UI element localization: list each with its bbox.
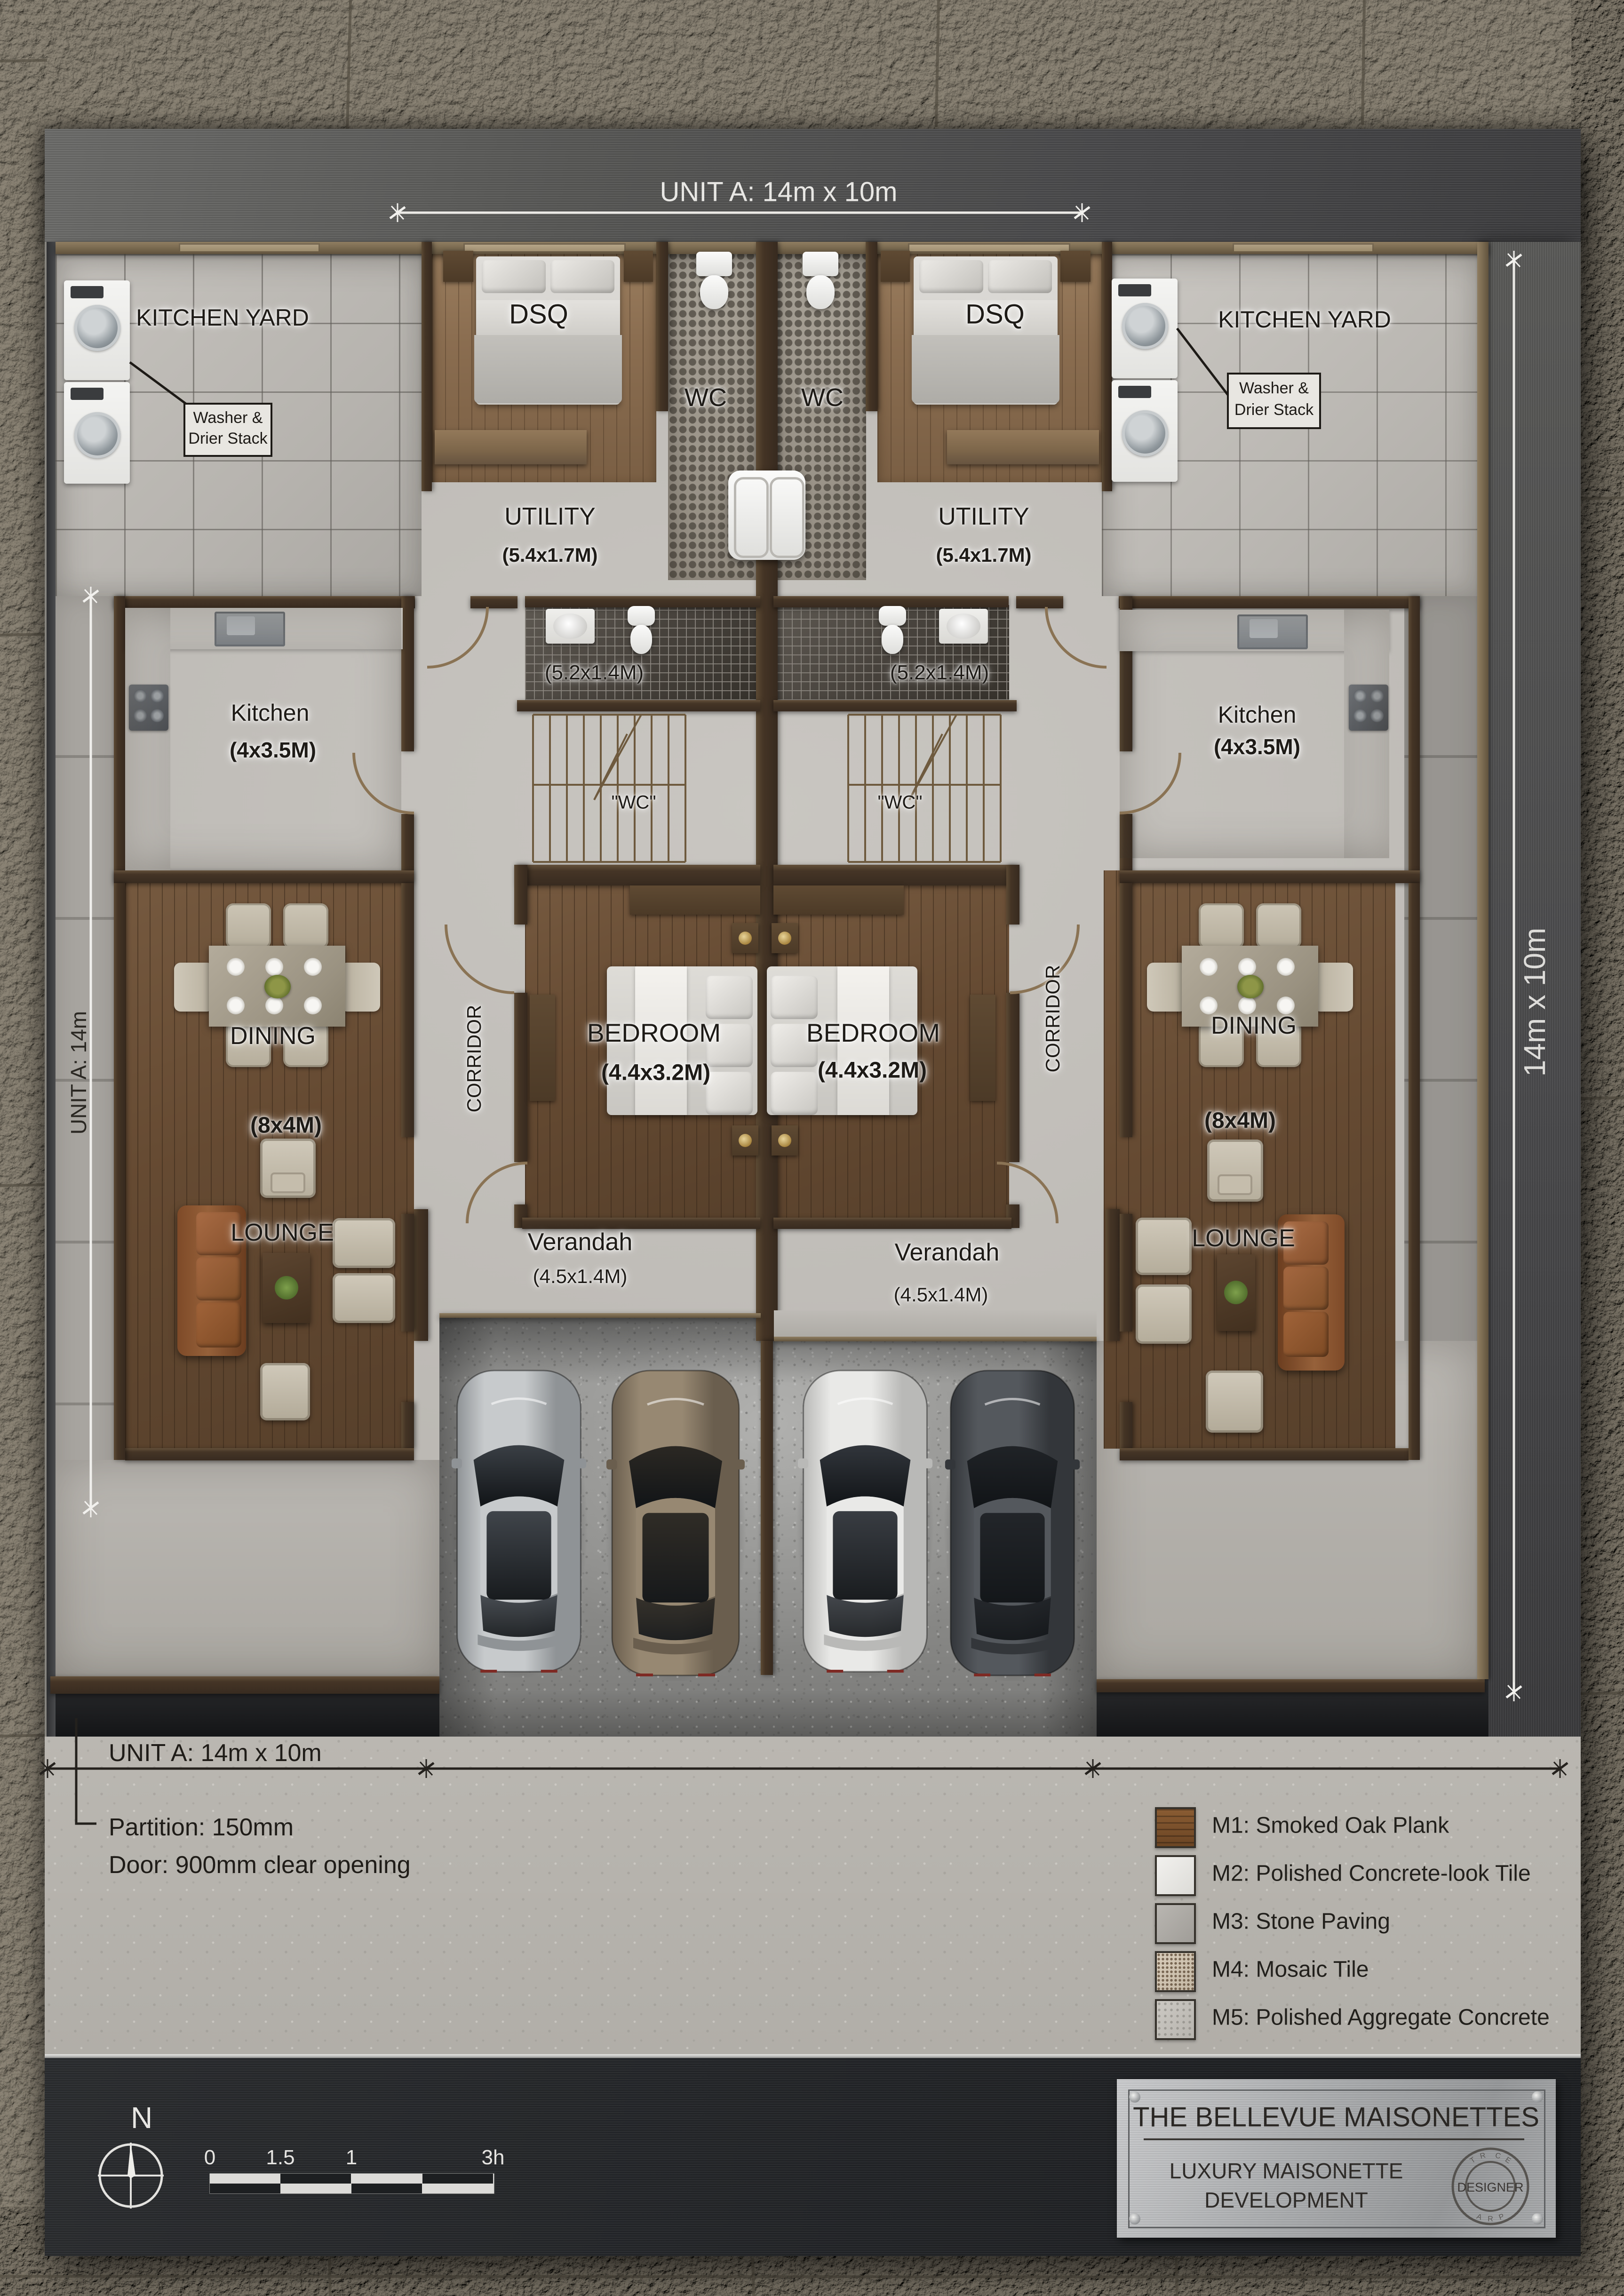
svg-text:N: N	[131, 2101, 152, 2135]
svg-text:3h: 3h	[482, 2146, 505, 2169]
svg-text:E: E	[1504, 2156, 1512, 2165]
svg-text:P: P	[1498, 2212, 1505, 2222]
svg-text:R: R	[1479, 2152, 1486, 2160]
svg-text:T: T	[1469, 2156, 1477, 2165]
svg-text:R: R	[1488, 2215, 1493, 2223]
svg-text:C: C	[1494, 2152, 1501, 2160]
svg-text:0: 0	[204, 2146, 215, 2169]
svg-text:A: A	[1475, 2212, 1483, 2222]
svg-text:1.5: 1.5	[266, 2146, 295, 2169]
svg-text:DESIGNER: DESIGNER	[1457, 2180, 1523, 2194]
svg-text:1: 1	[346, 2146, 357, 2169]
